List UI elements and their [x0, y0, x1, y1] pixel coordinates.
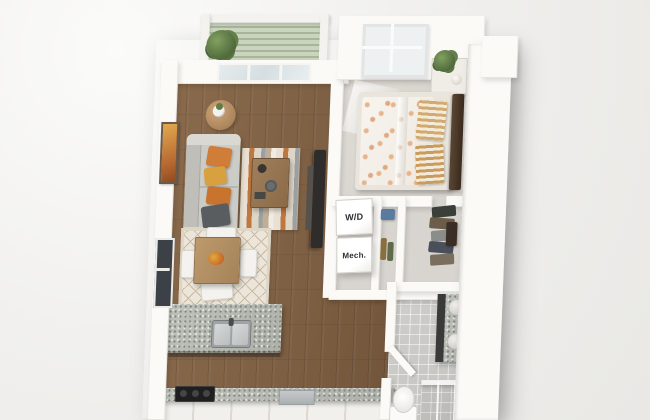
west-window-mullion — [155, 268, 170, 271]
apartment-unit: W/D Mech. — [0, 0, 650, 420]
shelf-bottle-2 — [387, 242, 394, 261]
sliding-glass-door — [217, 63, 312, 82]
bed-pillow-striped-bottom — [415, 143, 444, 185]
east-wall-step — [481, 36, 519, 78]
dishwasher-front — [279, 390, 316, 405]
island-sink-basin-left — [214, 324, 231, 345]
floor-plan-image: W/D Mech. — [0, 0, 650, 420]
kitchen-base-cabinets — [156, 399, 397, 420]
mechanical-label: Mech. — [342, 250, 366, 260]
shelf-towel-blue — [381, 209, 395, 220]
dining-chair-right — [239, 249, 257, 277]
washer-dryer-label: W/D — [345, 212, 363, 223]
kitchen-island-base-shadow — [168, 351, 280, 357]
sofa-pillow-orange — [205, 145, 232, 168]
mechanical-unit: Mech. — [336, 236, 372, 273]
bedroom-window-mullion-h — [362, 46, 422, 49]
shelf-bottle-1 — [380, 238, 387, 260]
balcony-rail-top — [201, 14, 329, 23]
sofa-pillow-mustard — [204, 166, 227, 187]
closet-clothes-5 — [430, 253, 454, 266]
west-wall-window — [153, 238, 175, 308]
island-sink-basin-right — [232, 324, 249, 345]
sofa-pillow-charcoal — [201, 203, 231, 229]
island-sink-faucet — [229, 318, 234, 326]
coffee-table-book — [254, 192, 265, 199]
washer-dryer-unit: W/D — [335, 198, 373, 236]
wall-art-orange — [159, 122, 179, 184]
bedroom-window — [361, 24, 429, 78]
sofa-armrest-top — [186, 134, 240, 145]
closet-shoe-box — [446, 222, 458, 246]
bed-pillow-striped-top — [415, 99, 447, 141]
